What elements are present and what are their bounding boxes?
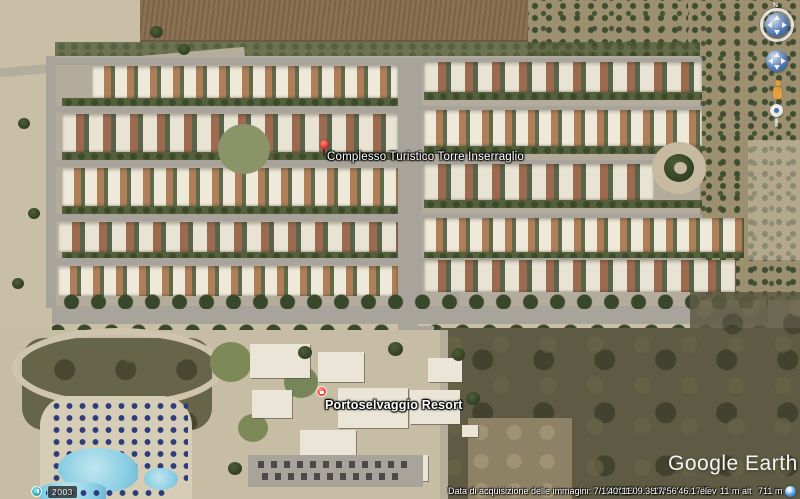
- look-down-arrow[interactable]: [774, 30, 780, 35]
- historical-imagery-year[interactable]: 2003: [48, 486, 77, 498]
- look-sphere[interactable]: [765, 13, 789, 37]
- house-row: [62, 168, 398, 206]
- house-row: [58, 222, 398, 252]
- pegman-head: [775, 80, 781, 86]
- historical-imagery-clock-icon[interactable]: [31, 486, 42, 497]
- elev-value: 11 m: [720, 486, 739, 496]
- move-left-arrow[interactable]: [768, 58, 773, 64]
- streaming-indicator-icon: [785, 486, 796, 497]
- look-left-arrow[interactable]: [767, 22, 772, 28]
- plaza-path: [674, 162, 687, 174]
- hedge: [62, 206, 398, 214]
- tree: [466, 392, 480, 405]
- pushpin-stem: [323, 149, 325, 156]
- hedge: [62, 98, 398, 106]
- garden-roundabout: [218, 124, 270, 174]
- tree: [28, 208, 40, 219]
- elev-label: elev: [700, 486, 717, 496]
- parked-cars: [258, 461, 408, 468]
- move-down-arrow[interactable]: [774, 65, 780, 70]
- lodging-pin-icon[interactable]: [316, 386, 327, 397]
- placemark-label[interactable]: Portoselvaggio Resort: [325, 398, 463, 412]
- alt-label: alt: [742, 486, 752, 496]
- placemark-label[interactable]: Complesso Turistico Torre Inserraglio: [327, 151, 524, 163]
- alt-value: 711 m: [758, 486, 782, 496]
- tree: [452, 348, 465, 361]
- hedge: [62, 252, 398, 258]
- look-joystick[interactable]: N: [758, 4, 798, 46]
- avenue-trees-north: [52, 290, 768, 309]
- resort-building: [252, 390, 292, 418]
- tree: [228, 462, 242, 475]
- house-row: [92, 66, 398, 98]
- central-road: [396, 58, 422, 310]
- hedge: [424, 252, 744, 258]
- look-right-arrow[interactable]: [782, 22, 787, 28]
- house-row: [424, 260, 736, 292]
- zoom-slider-track[interactable]: [775, 118, 778, 127]
- house-row: [424, 62, 702, 92]
- pegman-body: [773, 87, 782, 99]
- resort-building: [318, 352, 364, 382]
- pushpin-icon: [320, 140, 329, 149]
- pegman-icon[interactable]: [771, 80, 785, 102]
- imagery-date: Data di acquisizione delle immagini: 7/1…: [448, 486, 634, 496]
- move-right-arrow[interactable]: [781, 58, 786, 64]
- small-structure: [462, 425, 478, 437]
- hedge: [424, 200, 702, 208]
- tree: [12, 278, 24, 289]
- zoom-slider-knob[interactable]: [770, 104, 783, 117]
- house-row: [424, 218, 744, 252]
- scrubland-edge: [690, 292, 800, 336]
- hedge: [424, 92, 702, 100]
- move-up-arrow[interactable]: [774, 52, 780, 57]
- resort-lawn: [210, 342, 252, 382]
- dirt-clearing-right: [748, 140, 800, 260]
- google-earth-viewport[interactable]: Complesso Turistico Torre Inserraglio Po…: [0, 0, 800, 499]
- perimeter-road-left: [46, 56, 56, 308]
- plowed-field: [140, 0, 540, 42]
- parking-lot: [248, 455, 423, 487]
- tree: [178, 44, 190, 55]
- tree: [18, 118, 30, 129]
- move-joystick[interactable]: [766, 50, 788, 72]
- tree: [388, 342, 403, 356]
- tree: [298, 346, 312, 359]
- tree: [150, 26, 163, 38]
- house-row: [424, 110, 702, 146]
- google-earth-logo: Google Earth: [668, 452, 798, 476]
- parked-cars: [262, 473, 402, 480]
- look-up-arrow[interactable]: [774, 15, 780, 20]
- house-row: [424, 164, 654, 200]
- resort-lawn: [238, 414, 268, 442]
- resort-building: [428, 358, 462, 382]
